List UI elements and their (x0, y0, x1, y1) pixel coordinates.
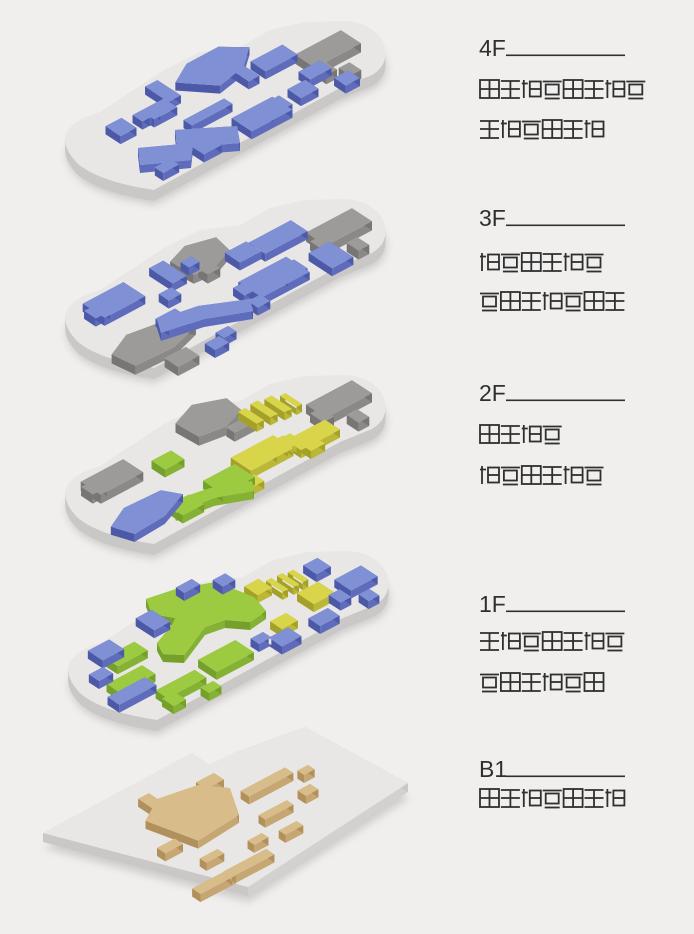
svg-text:3F: 3F (479, 205, 506, 231)
svg-text:2F: 2F (479, 380, 506, 406)
svg-text:4F: 4F (479, 35, 506, 61)
svg-text:1F: 1F (479, 591, 506, 617)
svg-text:B1: B1 (479, 756, 507, 782)
